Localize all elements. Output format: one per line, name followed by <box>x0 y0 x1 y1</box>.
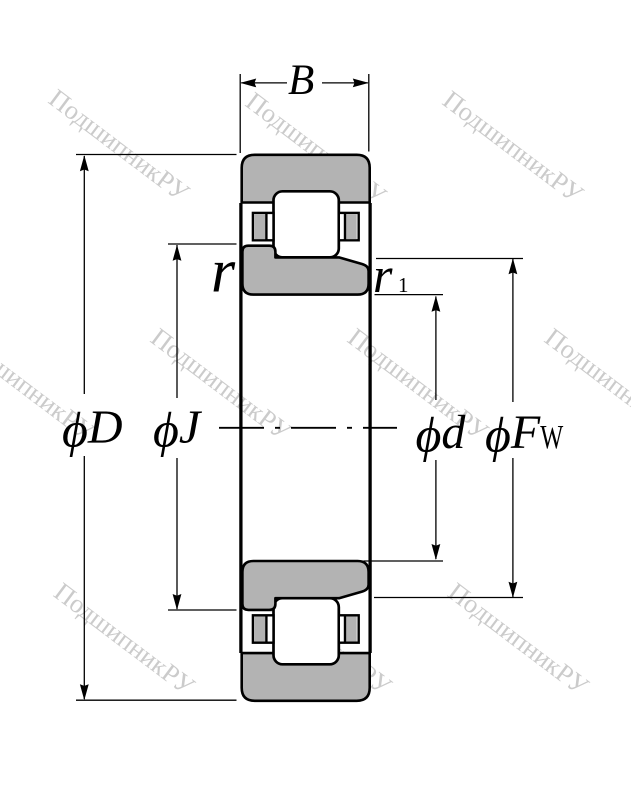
svg-text:r: r <box>211 238 236 306</box>
svg-text:ϕJ: ϕJ <box>153 401 203 458</box>
svg-text:ϕd: ϕd <box>416 406 467 463</box>
svg-text:B: B <box>288 57 314 104</box>
svg-text:ϕD: ϕD <box>62 401 123 458</box>
